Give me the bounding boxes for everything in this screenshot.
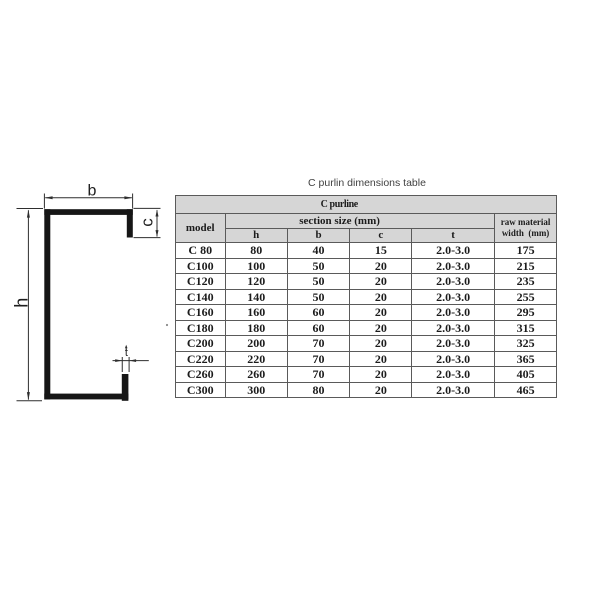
svg-text:h: h [11, 298, 31, 308]
svg-text:t: t [125, 347, 128, 359]
svg-text:c: c [138, 218, 157, 227]
